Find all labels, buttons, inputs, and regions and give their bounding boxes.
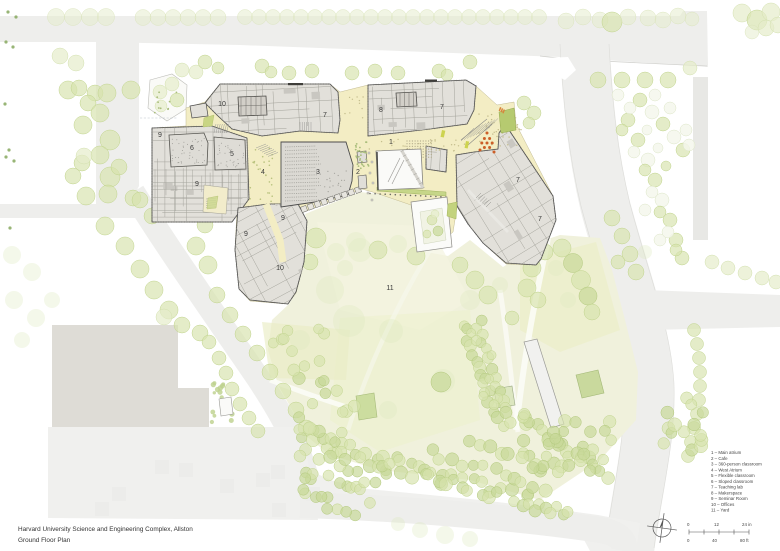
svg-text:3 – 360-person classroom: 3 – 360-person classroom — [711, 462, 762, 467]
svg-text:80 ft: 80 ft — [740, 538, 749, 543]
svg-text:4 – West Atrium: 4 – West Atrium — [711, 467, 742, 472]
svg-text:3: 3 — [316, 169, 320, 176]
svg-text:9: 9 — [281, 215, 285, 222]
svg-text:7 – Teaching lab: 7 – Teaching lab — [711, 485, 743, 490]
svg-text:8 – Makerspace: 8 – Makerspace — [711, 490, 743, 495]
svg-text:2 – Cafe: 2 – Cafe — [711, 456, 728, 461]
svg-text:9: 9 — [195, 181, 199, 188]
svg-text:1 – Main atrium: 1 – Main atrium — [711, 450, 742, 455]
svg-text:2: 2 — [356, 169, 360, 176]
svg-text:7: 7 — [440, 104, 444, 111]
svg-text:4: 4 — [261, 169, 265, 176]
svg-text:Ground Floor Plan: Ground Floor Plan — [18, 537, 71, 544]
svg-text:Harvard University Science and: Harvard University Science and Engineeri… — [18, 526, 193, 533]
svg-text:11: 11 — [386, 285, 393, 292]
svg-text:6 – Sloped classroom: 6 – Sloped classroom — [711, 479, 754, 484]
svg-text:10: 10 — [218, 101, 226, 108]
svg-text:10: 10 — [276, 265, 284, 272]
svg-text:1: 1 — [389, 139, 393, 146]
svg-text:12: 12 — [714, 522, 719, 527]
svg-text:10 – Offices: 10 – Offices — [711, 502, 735, 507]
svg-text:5: 5 — [230, 151, 234, 158]
svg-text:9 – Seminar Room: 9 – Seminar Room — [711, 496, 748, 501]
svg-text:40: 40 — [712, 538, 717, 543]
svg-text:7: 7 — [516, 177, 520, 184]
svg-text:9: 9 — [158, 132, 162, 139]
svg-text:9: 9 — [244, 231, 248, 238]
svg-text:24 in: 24 in — [742, 522, 752, 527]
svg-text:11 – Yard: 11 – Yard — [711, 508, 730, 513]
svg-text:8: 8 — [379, 107, 383, 114]
svg-text:6: 6 — [190, 145, 194, 152]
svg-text:7: 7 — [538, 216, 542, 223]
svg-text:5 – Flexible classroom: 5 – Flexible classroom — [711, 473, 755, 478]
svg-text:7: 7 — [323, 112, 327, 119]
